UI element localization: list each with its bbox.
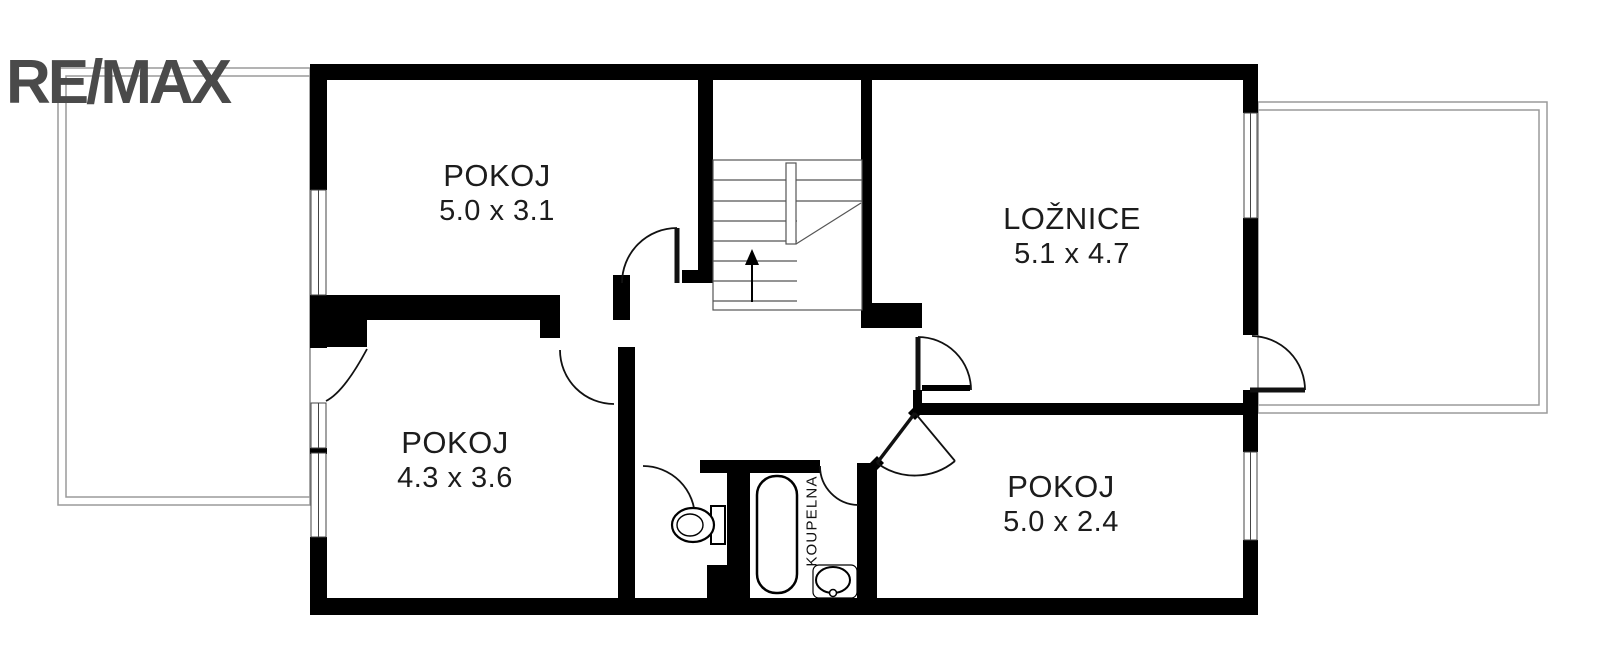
room-name: POKOJ [397, 425, 513, 461]
room-label-pokoj-bottom-right: POKOJ 5.0 x 2.4 [1003, 469, 1119, 539]
room-label-koupelna: KOUPELNA [804, 475, 821, 566]
room-name: POKOJ [1003, 469, 1119, 505]
door-arc-bathroom [820, 466, 858, 505]
window-icon [311, 453, 326, 537]
room-label-pokoj-top-left: POKOJ 5.0 x 3.1 [439, 158, 555, 228]
left-balcony-outline [58, 68, 310, 505]
door-arc-loznice [918, 337, 971, 390]
floor-plan: RE/MAX POKOJ 5.0 x 3.1 LOŽNICE 5.1 x 4.7… [0, 0, 1600, 672]
room-name: POKOJ [439, 158, 555, 194]
door-arc-bottom-left-room [560, 350, 614, 404]
room-label-pokoj-bottom-left: POKOJ 4.3 x 3.6 [397, 425, 513, 495]
room-dimensions: 5.0 x 2.4 [1003, 504, 1119, 539]
floor-plan-drawing [0, 0, 1600, 672]
toilet-icon [672, 506, 725, 544]
room-dimensions: 4.3 x 3.6 [397, 460, 513, 495]
staircase [713, 160, 862, 310]
door-arc-balcony-left [326, 349, 367, 401]
window-icon [311, 403, 326, 448]
door-arc-top-left-room [622, 228, 677, 283]
remax-logo: RE/MAX [6, 52, 229, 114]
right-balcony-outline [1258, 102, 1547, 413]
room-label-loznice: LOŽNICE 5.1 x 4.7 [1003, 201, 1141, 271]
room-dimensions: 5.0 x 3.1 [439, 193, 555, 228]
fixtures [672, 476, 857, 598]
sink-icon [813, 565, 857, 598]
bathtub-icon [757, 476, 797, 593]
room-name: LOŽNICE [1003, 201, 1141, 237]
window-icon [311, 190, 326, 295]
window-icon [1244, 452, 1257, 540]
room-dimensions: 5.1 x 4.7 [1003, 236, 1141, 271]
window-icon [1244, 113, 1257, 218]
door-fan-bottom-right-room [870, 406, 955, 476]
